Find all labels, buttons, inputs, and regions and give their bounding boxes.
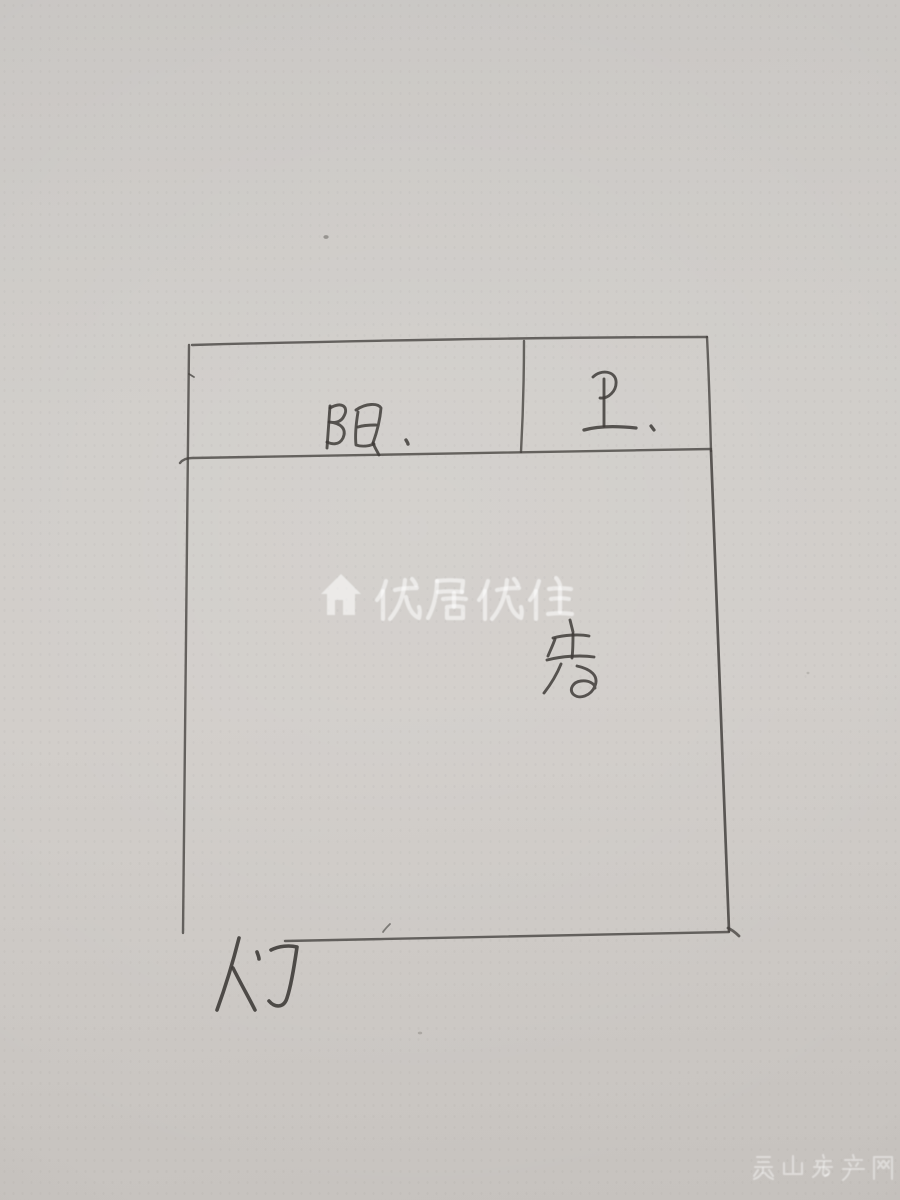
walls: [180, 337, 739, 941]
wall-right-upper: [707, 337, 711, 451]
wall-bottom: [285, 932, 729, 941]
bedroom-label-strokes: [544, 620, 596, 697]
wall-left: [183, 345, 189, 933]
floorplan-photo: 优居优住 灵山房产网 阳 卫 房 门: [0, 0, 900, 1200]
wall-right-lower: [711, 451, 729, 931]
bathroom-label-strokes: [584, 372, 654, 430]
watermark-center-text-strokes: [374, 574, 579, 626]
watermark-bottom-right-strokes: [750, 1152, 900, 1186]
door-label-strokes: [217, 938, 297, 1010]
divider-horizontal: [180, 449, 711, 463]
divider-vertical: [521, 341, 524, 452]
wall-top: [192, 337, 707, 345]
house-icon: [314, 568, 366, 620]
balcony-label-strokes: [327, 404, 408, 455]
door-tick: [383, 924, 390, 932]
